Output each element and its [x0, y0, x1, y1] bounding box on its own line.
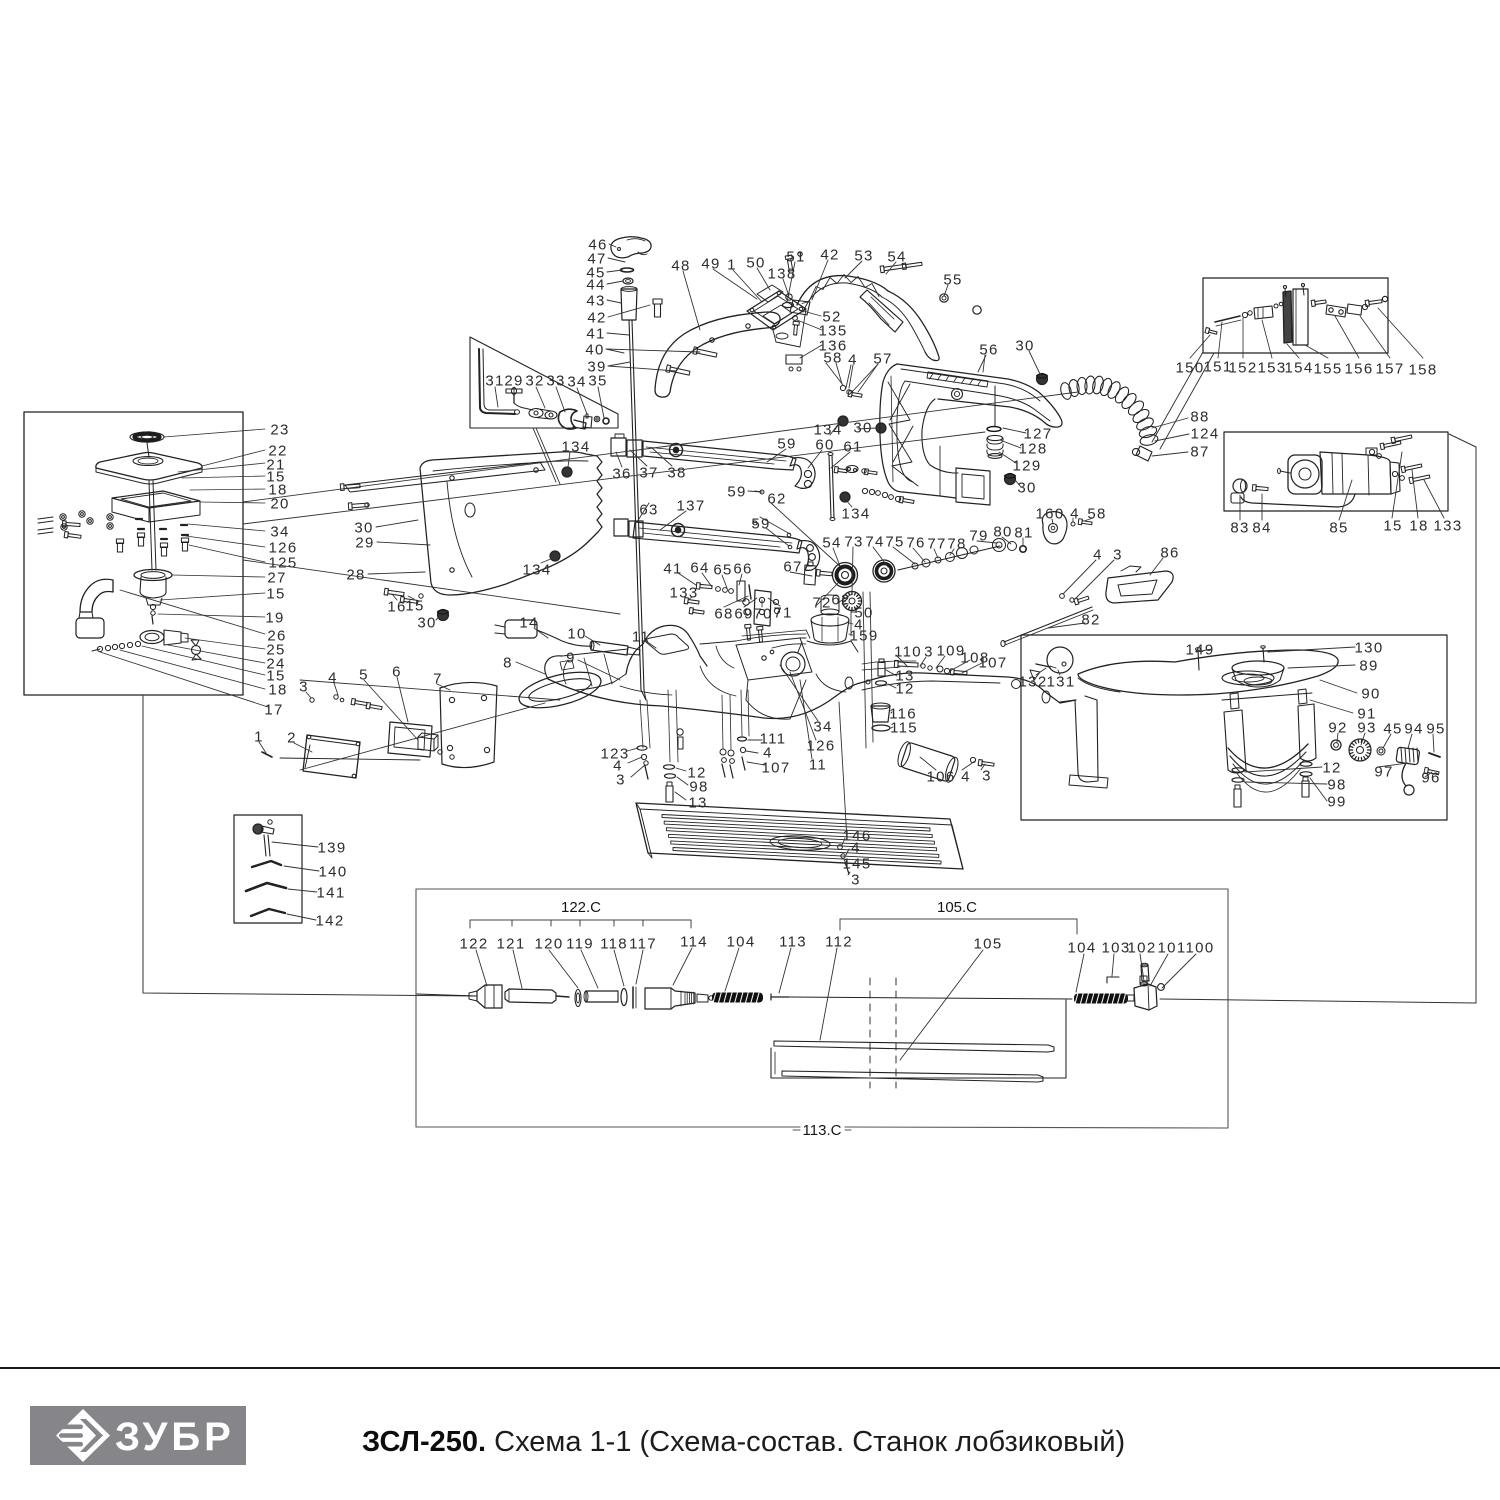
svg-text:154: 154 — [1285, 359, 1314, 376]
svg-text:59: 59 — [727, 483, 746, 500]
svg-text:4: 4 — [1093, 546, 1103, 563]
svg-text:3: 3 — [299, 678, 309, 695]
svg-text:10: 10 — [567, 625, 586, 642]
svg-text:9: 9 — [566, 649, 576, 666]
svg-text:112: 112 — [825, 933, 853, 950]
svg-text:98: 98 — [689, 778, 708, 795]
svg-text:155: 155 — [1314, 360, 1343, 377]
svg-text:70: 70 — [753, 605, 772, 622]
svg-text:41: 41 — [663, 560, 682, 577]
svg-text:30: 30 — [853, 419, 872, 436]
svg-text:133: 133 — [1434, 517, 1463, 534]
svg-text:121: 121 — [497, 935, 526, 952]
svg-text:42: 42 — [820, 246, 839, 263]
svg-text:156: 156 — [1345, 360, 1374, 377]
svg-text:54: 54 — [887, 248, 906, 265]
svg-text:113: 113 — [779, 933, 807, 950]
svg-text:13: 13 — [688, 794, 707, 811]
svg-text:12: 12 — [1322, 759, 1341, 776]
svg-text:95: 95 — [1426, 720, 1445, 737]
svg-text:133: 133 — [670, 584, 699, 601]
svg-text:87: 87 — [1190, 443, 1209, 460]
svg-text:4: 4 — [961, 768, 971, 785]
svg-text:41: 41 — [586, 325, 605, 342]
svg-text:62: 62 — [831, 591, 850, 608]
svg-text:141: 141 — [317, 884, 346, 901]
svg-text:3: 3 — [851, 871, 861, 888]
svg-text:138: 138 — [768, 265, 797, 282]
svg-text:55: 55 — [943, 271, 962, 288]
svg-text:3: 3 — [1113, 546, 1123, 563]
svg-text:62: 62 — [767, 490, 786, 507]
svg-text:100: 100 — [1186, 939, 1215, 956]
svg-text:68: 68 — [714, 605, 733, 622]
svg-text:122: 122 — [460, 935, 489, 952]
svg-text:114: 114 — [680, 933, 708, 950]
svg-text:145: 145 — [843, 855, 872, 872]
svg-text:76: 76 — [906, 534, 925, 551]
svg-text:99: 99 — [1327, 793, 1346, 810]
svg-text:157: 157 — [1376, 360, 1405, 377]
svg-text:75: 75 — [885, 533, 904, 550]
svg-text:107: 107 — [979, 654, 1008, 671]
svg-text:115: 115 — [890, 719, 918, 736]
svg-text:85: 85 — [1329, 519, 1348, 536]
svg-text:61: 61 — [843, 438, 862, 455]
svg-text:142: 142 — [316, 912, 345, 929]
svg-text:82: 82 — [1081, 611, 1100, 628]
svg-text:140: 140 — [319, 863, 348, 880]
svg-text:40: 40 — [585, 341, 604, 358]
svg-text:16: 16 — [387, 598, 406, 615]
svg-text:4: 4 — [1070, 505, 1080, 522]
svg-text:101: 101 — [1158, 939, 1187, 956]
svg-text:88: 88 — [1190, 408, 1209, 425]
svg-text:119: 119 — [566, 935, 594, 952]
svg-text:139: 139 — [318, 839, 347, 856]
svg-text:ЗСЛ-250. Схема 1-1 (Схема-сост: ЗСЛ-250. Схема 1-1 (Схема-состав. Станок… — [362, 1426, 1125, 1458]
svg-text:78: 78 — [947, 535, 966, 552]
svg-text:48: 48 — [671, 257, 690, 274]
svg-text:58: 58 — [1087, 505, 1106, 522]
svg-text:43: 43 — [586, 292, 605, 309]
svg-text:65: 65 — [713, 561, 732, 578]
svg-text:29: 29 — [355, 534, 374, 551]
svg-text:32: 32 — [525, 372, 544, 389]
svg-text:4: 4 — [328, 669, 338, 686]
svg-text:107: 107 — [762, 759, 791, 776]
svg-text:129: 129 — [1013, 457, 1042, 474]
svg-text:19: 19 — [265, 609, 284, 626]
svg-text:98: 98 — [1327, 776, 1346, 793]
svg-text:122.C: 122.C — [561, 899, 601, 916]
svg-text:105: 105 — [974, 935, 1003, 952]
svg-text:69: 69 — [734, 605, 753, 622]
svg-text:4: 4 — [851, 839, 861, 856]
svg-text:44: 44 — [586, 276, 605, 293]
svg-text:106: 106 — [927, 768, 956, 785]
svg-text:36: 36 — [612, 465, 631, 482]
svg-text:102: 102 — [1128, 939, 1157, 956]
svg-text:17: 17 — [264, 701, 283, 718]
svg-text:3: 3 — [616, 771, 626, 788]
svg-text:128: 128 — [1019, 440, 1048, 457]
svg-text:103: 103 — [1102, 939, 1131, 956]
svg-text:90: 90 — [1361, 685, 1380, 702]
svg-text:134: 134 — [842, 505, 871, 522]
svg-text:30: 30 — [1017, 479, 1036, 496]
svg-text:104: 104 — [727, 933, 756, 950]
svg-text:50: 50 — [746, 254, 765, 271]
svg-text:38: 38 — [667, 464, 686, 481]
svg-text:105.C: 105.C — [937, 899, 977, 916]
svg-text:8: 8 — [503, 654, 513, 671]
svg-text:153: 153 — [1258, 359, 1287, 376]
svg-text:158: 158 — [1409, 361, 1438, 378]
svg-text:11: 11 — [632, 628, 650, 645]
svg-text:18: 18 — [268, 681, 287, 698]
svg-text:130: 130 — [1355, 639, 1384, 656]
svg-text:93: 93 — [1357, 719, 1376, 736]
svg-text:160: 160 — [1036, 505, 1065, 522]
svg-text:59: 59 — [777, 435, 796, 452]
svg-text:152: 152 — [1229, 359, 1258, 376]
svg-text:57: 57 — [873, 350, 892, 367]
svg-text:30: 30 — [417, 614, 436, 631]
svg-text:54: 54 — [822, 534, 841, 551]
svg-text:73: 73 — [844, 533, 863, 550]
svg-text:5: 5 — [359, 666, 369, 683]
svg-text:132: 132 — [1019, 673, 1048, 690]
svg-text:77: 77 — [927, 535, 946, 552]
svg-text:56: 56 — [979, 341, 998, 358]
svg-text:63: 63 — [639, 501, 658, 518]
svg-text:12: 12 — [895, 680, 914, 697]
svg-text:94: 94 — [1404, 720, 1423, 737]
svg-text:137: 137 — [677, 497, 706, 514]
svg-text:131: 131 — [1047, 673, 1076, 690]
svg-text:15: 15 — [266, 585, 285, 602]
svg-text:64: 64 — [690, 559, 709, 576]
svg-text:18: 18 — [1409, 517, 1428, 534]
svg-text:81: 81 — [1014, 524, 1033, 541]
svg-text:51: 51 — [786, 248, 805, 265]
svg-text:74: 74 — [865, 533, 884, 550]
svg-text:86: 86 — [1160, 544, 1179, 561]
svg-text:113.C: 113.C — [803, 1122, 842, 1139]
svg-text:66: 66 — [733, 560, 752, 577]
svg-text:34: 34 — [813, 718, 832, 735]
svg-text:30: 30 — [1015, 337, 1034, 354]
svg-text:134: 134 — [562, 438, 591, 455]
svg-text:27: 27 — [267, 569, 286, 586]
svg-text:96: 96 — [1421, 769, 1440, 786]
svg-text:53: 53 — [854, 247, 873, 264]
svg-text:23: 23 — [270, 421, 289, 438]
svg-text:49: 49 — [701, 255, 720, 272]
svg-text:ЗУБР: ЗУБР — [115, 1415, 235, 1459]
svg-text:124: 124 — [1191, 425, 1220, 442]
svg-text:89: 89 — [1359, 657, 1378, 674]
svg-text:45: 45 — [1383, 720, 1402, 737]
svg-text:83: 83 — [1230, 519, 1249, 536]
svg-text:104: 104 — [1068, 939, 1097, 956]
svg-text:71: 71 — [773, 604, 792, 621]
svg-text:15: 15 — [405, 597, 424, 614]
svg-text:42: 42 — [587, 309, 606, 326]
svg-text:134: 134 — [523, 561, 552, 578]
svg-text:84: 84 — [1252, 519, 1271, 536]
svg-text:3: 3 — [982, 767, 992, 784]
svg-text:15: 15 — [1383, 517, 1402, 534]
svg-text:34: 34 — [270, 523, 289, 540]
svg-text:150: 150 — [1176, 359, 1205, 376]
svg-text:1: 1 — [727, 256, 737, 273]
